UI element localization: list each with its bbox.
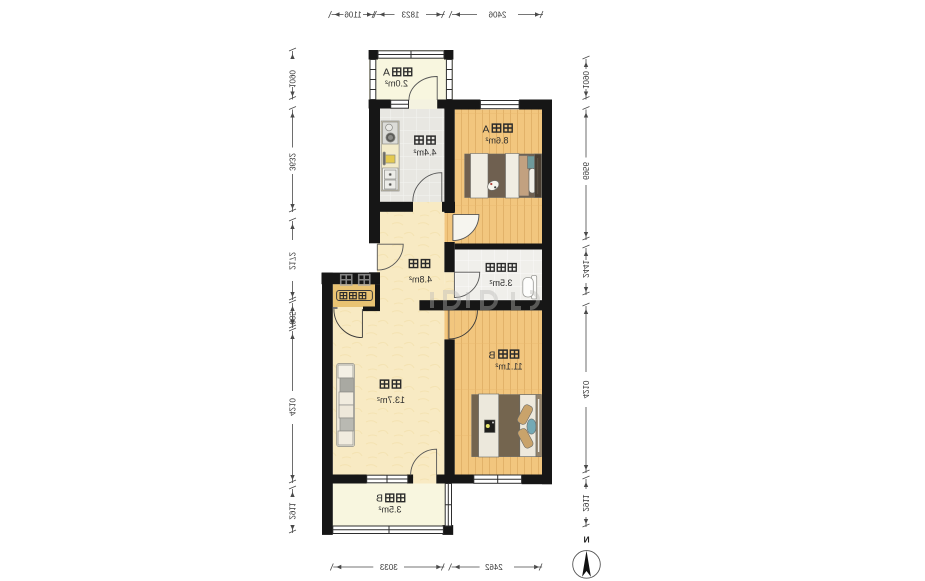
svg-text:1090: 1090 [581, 71, 590, 89]
svg-text:2172: 2172 [288, 252, 297, 270]
svg-text:B: B [376, 493, 383, 505]
svg-text:3033: 3033 [379, 563, 397, 572]
svg-text:3632: 3632 [288, 153, 297, 171]
svg-text:6956: 6956 [581, 162, 590, 180]
svg-text:4.4m²: 4.4m² [413, 148, 436, 158]
svg-text:3.5m²: 3.5m² [489, 278, 512, 288]
svg-text:A: A [482, 124, 489, 136]
svg-text:A: A [383, 67, 390, 79]
svg-text:13.7m²: 13.7m² [377, 395, 405, 405]
svg-text:N: N [583, 535, 589, 545]
svg-text:1090: 1090 [288, 70, 297, 88]
svg-text:685: 685 [288, 311, 297, 325]
svg-text:2462: 2462 [484, 563, 502, 572]
svg-text:4.8m²: 4.8m² [409, 275, 432, 285]
svg-text:8.6m²: 8.6m² [485, 136, 508, 146]
svg-text:1823: 1823 [401, 10, 419, 19]
svg-text:2911: 2911 [581, 494, 590, 512]
svg-text:4210: 4210 [581, 380, 590, 398]
svg-text:2.0m²: 2.0m² [385, 79, 408, 89]
svg-text:2441: 2441 [581, 260, 590, 278]
svg-text:2911: 2911 [288, 502, 297, 520]
svg-text:3.5m²: 3.5m² [378, 505, 401, 515]
svg-text:4210: 4210 [288, 398, 297, 416]
svg-text:2406: 2406 [488, 10, 506, 19]
svg-text:1106: 1106 [344, 10, 362, 19]
svg-text:11.1m²: 11.1m² [495, 362, 522, 372]
svg-text:B: B [488, 350, 495, 362]
